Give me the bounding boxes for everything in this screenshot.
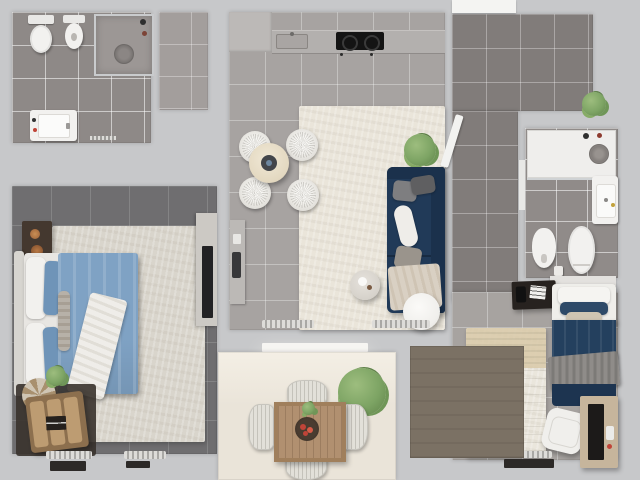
shower-knob	[142, 31, 147, 36]
shower-head	[589, 144, 609, 164]
bedroom1-radiator-1	[46, 451, 92, 459]
balcony-door-light	[262, 343, 368, 352]
toilet-2-bowl	[568, 226, 595, 274]
double-bed	[14, 251, 138, 396]
toilet	[28, 15, 54, 53]
side-table-cup	[367, 285, 372, 290]
desk-bottle	[606, 426, 614, 440]
clock-deco	[30, 229, 40, 239]
wardrobe	[196, 213, 217, 326]
bidet-2	[532, 228, 556, 274]
toilet-bowl	[30, 25, 52, 53]
cooktop-knob-2	[370, 53, 373, 56]
lamp-deco	[516, 286, 527, 302]
gold-deco	[611, 203, 615, 207]
vanity-2	[592, 176, 618, 224]
wicker-chair-left	[248, 404, 276, 450]
kitchen-sink	[276, 34, 308, 49]
soap-deco	[33, 128, 37, 132]
cooktop-knob-1	[340, 53, 343, 56]
bath1-floor-grille	[90, 136, 116, 140]
single-bed	[552, 284, 616, 406]
dining-chair-4	[287, 179, 319, 211]
console-speaker	[232, 252, 241, 278]
faucet-2	[604, 198, 608, 202]
corner-sofa	[387, 167, 445, 313]
burner-left	[342, 35, 358, 51]
waste-bin	[554, 266, 563, 276]
bidet-2-slot	[541, 254, 547, 263]
floor-plan-canvas	[0, 0, 640, 480]
fruit-1	[300, 424, 306, 430]
faucet	[66, 123, 70, 129]
burner-right	[364, 35, 380, 51]
sofa-roll-pillow	[392, 203, 420, 248]
fruit-3	[303, 431, 308, 436]
dining-chair-2	[286, 129, 318, 161]
bidet-drain	[71, 33, 77, 41]
headboard	[14, 251, 24, 396]
entry-hall-floor	[159, 12, 208, 110]
bidet-back	[63, 15, 85, 23]
desk-red-deco	[607, 444, 612, 449]
living-plant	[404, 134, 436, 166]
wood-deck	[410, 346, 524, 458]
bedroom-plant	[46, 366, 66, 386]
toilet-tank	[28, 15, 54, 24]
shower-dial	[597, 133, 602, 138]
shower-control	[140, 19, 146, 25]
dining-table-deco	[266, 160, 272, 166]
toilet-2-seam	[573, 264, 590, 266]
dining-table-center	[261, 155, 277, 171]
chair-cushion-line	[547, 415, 583, 449]
table-plant-sprig	[302, 402, 315, 415]
dining-table	[249, 143, 289, 183]
jar-deco	[32, 118, 36, 122]
hallway-plant	[582, 92, 606, 116]
bidet	[63, 15, 85, 51]
living-radiator-1	[262, 320, 314, 328]
desk	[580, 396, 618, 468]
shower-cabin	[94, 14, 154, 76]
outdoor-table	[274, 402, 346, 462]
vanity-sink	[30, 110, 77, 141]
shelf-unit	[588, 404, 604, 460]
bedroom1-radiator-2	[124, 451, 166, 459]
shower-valve	[583, 133, 589, 139]
pillow-knit	[58, 291, 70, 351]
bathroom2-door-trim	[519, 160, 525, 210]
bench-book	[46, 416, 66, 431]
entry-opening	[452, 0, 516, 13]
papers-deco	[529, 285, 546, 300]
tv	[202, 246, 213, 318]
kitchen-cabinet-block	[229, 12, 272, 52]
cooktop	[336, 32, 384, 50]
floor-vent-2	[126, 461, 150, 468]
bedroom2-vent	[504, 459, 554, 468]
nightstand-2	[512, 280, 557, 310]
wall-console	[230, 220, 245, 304]
console-deco	[233, 234, 241, 244]
side-table-deco	[358, 277, 367, 286]
sofa-pillow-charcoal	[410, 174, 437, 196]
side-table	[350, 270, 380, 300]
floor-vent-1	[50, 461, 86, 471]
fruit-bowl	[295, 417, 319, 441]
sink-faucet	[290, 32, 294, 36]
shower-drain	[114, 44, 134, 64]
hallway-floor-corridor	[452, 111, 518, 302]
bed-bench	[25, 391, 89, 454]
living-radiator-2	[372, 320, 430, 328]
walk-in-shower	[527, 130, 616, 180]
toilet-2	[564, 226, 598, 278]
hallway-floor-top	[452, 14, 593, 111]
